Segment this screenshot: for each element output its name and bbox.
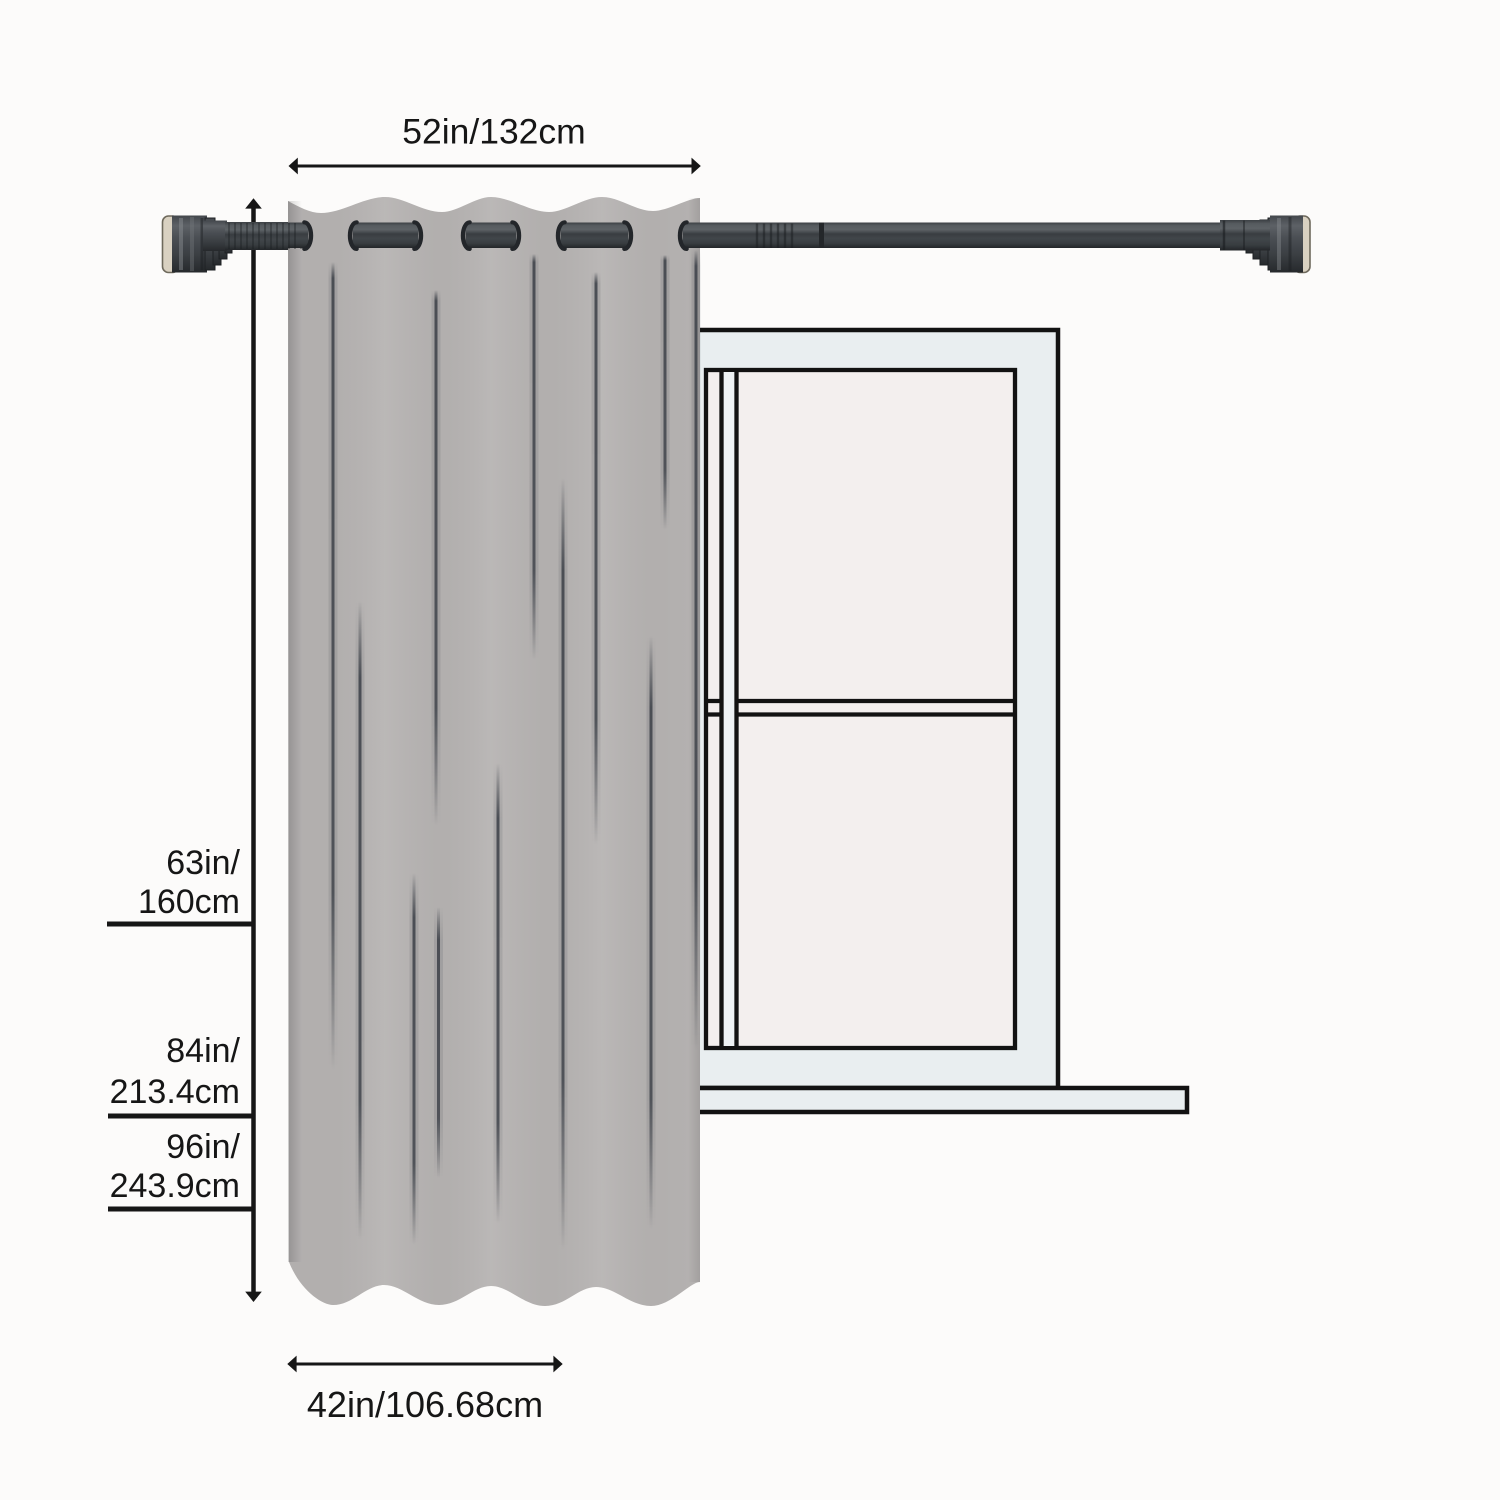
svg-text:243.9cm: 243.9cm bbox=[110, 1167, 240, 1205]
svg-text:52in/132cm: 52in/132cm bbox=[402, 112, 586, 152]
svg-text:63in/: 63in/ bbox=[166, 844, 240, 882]
svg-text:84in/: 84in/ bbox=[166, 1032, 240, 1070]
svg-text:42in/106.68cm: 42in/106.68cm bbox=[307, 1384, 543, 1425]
svg-text:213.4cm: 213.4cm bbox=[110, 1073, 240, 1111]
svg-text:96in/: 96in/ bbox=[166, 1128, 240, 1166]
svg-text:160cm: 160cm bbox=[138, 883, 240, 921]
